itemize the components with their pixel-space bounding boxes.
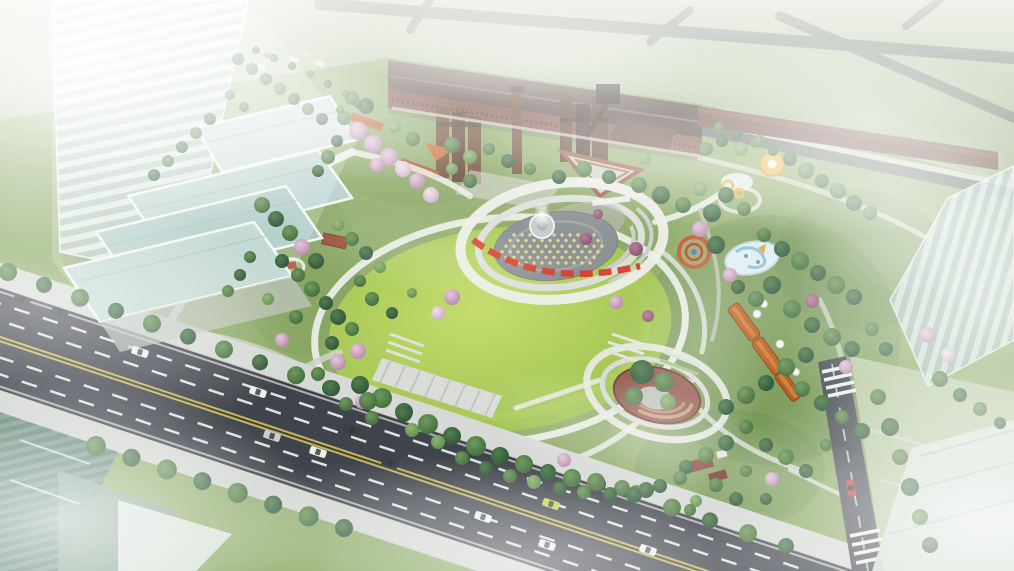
rendering-canvas: Aerial rendering of an industrial-herita… [0, 0, 1014, 571]
tree [351, 376, 369, 394]
plaza-light-dot [600, 245, 603, 248]
plaza-light-dot [596, 250, 599, 253]
tree [291, 268, 305, 282]
tree [365, 411, 379, 425]
tree [609, 295, 623, 309]
tree [466, 436, 486, 456]
plaza-light-dot [580, 261, 583, 264]
tree [431, 306, 445, 320]
tree [304, 281, 320, 297]
tree [330, 309, 346, 325]
street-tree [287, 366, 305, 384]
street-tree [359, 392, 377, 410]
tree [339, 397, 353, 411]
plaza-light-dot [588, 250, 591, 253]
tree [418, 414, 438, 434]
tree [325, 336, 339, 350]
street-tree [396, 406, 412, 422]
street-tree [324, 380, 340, 396]
plaza-light-dot [584, 256, 587, 259]
plaza-light-dot [572, 250, 575, 253]
tree [311, 367, 325, 381]
plaza-light-dot [592, 245, 595, 248]
tree [275, 254, 289, 268]
plaza-light-dot [588, 261, 591, 264]
tree [365, 292, 379, 306]
tree [386, 307, 398, 319]
tree [629, 242, 643, 256]
tree [350, 343, 366, 359]
plaza-light-dot [568, 245, 571, 248]
tree [405, 423, 419, 437]
plaza-light-dot [576, 256, 579, 259]
tree [443, 427, 461, 445]
plaza-light-dot [580, 250, 583, 253]
tree [431, 435, 445, 449]
mist-overlay [0, 0, 1014, 571]
tree [330, 354, 346, 370]
park-aerial-rendering: Aerial rendering of an industrial-herita… [0, 0, 1014, 571]
plaza-light-dot [592, 256, 595, 259]
plaza-light-dot [576, 245, 579, 248]
tree [319, 296, 333, 310]
plaza-light-dot [584, 245, 587, 248]
tree [345, 322, 359, 336]
